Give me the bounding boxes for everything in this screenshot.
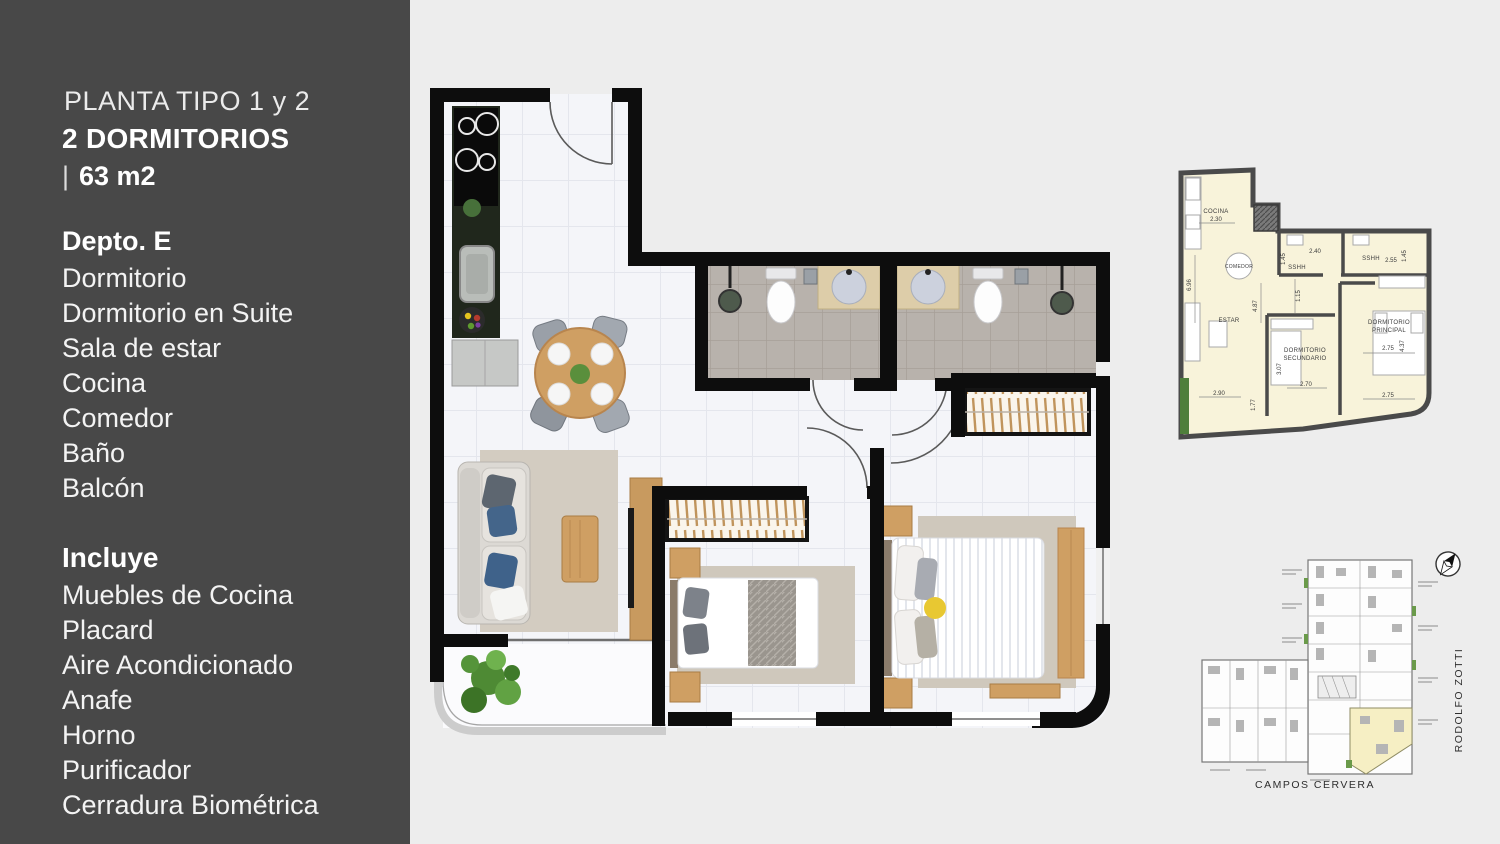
north-arrow-icon xyxy=(1431,548,1466,582)
includes-list-item: Muebles de Cocina xyxy=(62,578,386,613)
bathroom-1 xyxy=(708,264,880,380)
includes-list: Muebles de Cocina Placard Aire Acondicio… xyxy=(62,578,386,823)
mini-dim-275-bottom: 2.75 xyxy=(1382,393,1394,399)
area-value: 63 m2 xyxy=(79,161,156,191)
counter-plant-icon xyxy=(463,199,481,217)
mini-dim-307: 3.07 xyxy=(1277,363,1283,375)
shower-icon xyxy=(1051,292,1073,314)
hedge xyxy=(1180,378,1189,434)
toilet-icon xyxy=(767,281,795,323)
room-list-item: Cocina xyxy=(62,366,386,401)
mini-dim-487: 4.87 xyxy=(1253,300,1259,312)
elevator-core xyxy=(1318,676,1356,698)
includes-list-item: Purificador xyxy=(62,753,386,788)
mini-dim-240: 2.40 xyxy=(1309,249,1321,255)
mini-dim-437: 4.37 xyxy=(1400,340,1406,352)
building-outline xyxy=(1202,560,1438,780)
includes-list-item: Placard xyxy=(62,613,386,648)
room-list-item: Comedor xyxy=(62,401,386,436)
mini-floor-plan-svg: COCINA 2.30 6.96 COMEDOR 4.87 1.15 SSHH … xyxy=(1175,163,1440,440)
room-list-item: Dormitorio xyxy=(62,261,386,296)
shower-icon xyxy=(719,290,741,312)
mini-dim-115: 1.15 xyxy=(1296,290,1302,302)
main-floor-plan-svg xyxy=(430,88,1120,768)
room-list: Dormitorio Dormitorio en Suite Sala de e… xyxy=(62,261,386,506)
basin-icon xyxy=(832,270,866,304)
info-sidebar: PLANTA TIPO 1 y 2 2 DORMITORIOS |63 m2 D… xyxy=(0,0,410,844)
building-site-plan: CAMPOS CERVERA RODOLFO ZOTTI xyxy=(1190,548,1490,793)
dimensioned-floor-plan: COCINA 2.30 6.96 COMEDOR 4.87 1.15 SSHH … xyxy=(1175,163,1440,440)
area-separator: | xyxy=(62,161,69,191)
mini-dim-255: 2.55 xyxy=(1385,258,1397,264)
mini-dim-270: 2.70 xyxy=(1300,382,1312,388)
bedrooms-heading: 2 DORMITORIOS xyxy=(62,123,386,155)
pillow xyxy=(483,552,518,591)
mini-label-comedor: COMEDOR xyxy=(1225,264,1253,270)
unit-title: Depto. E xyxy=(62,226,386,257)
includes-list-item: Anafe xyxy=(62,683,386,718)
dining-table xyxy=(528,314,632,435)
main-floor-plan-render xyxy=(430,88,1120,768)
pillow xyxy=(682,623,709,655)
fruit-bowl-icon xyxy=(459,307,485,333)
mini-dim-290: 2.90 xyxy=(1213,391,1225,397)
includes-title: Incluye xyxy=(62,542,386,574)
mini-label-dorm-ppal-1: DORMITORIO xyxy=(1368,320,1410,326)
bench xyxy=(990,684,1060,698)
room-list-item: Baño xyxy=(62,436,386,471)
small-sink-icon xyxy=(804,269,817,284)
includes-list-item: Aire Acondicionado xyxy=(62,648,386,683)
room-list-item: Dormitorio en Suite xyxy=(62,296,386,331)
plan-type-heading: PLANTA TIPO 1 y 2 xyxy=(64,86,386,117)
street-campos-cervera: CAMPOS CERVERA xyxy=(1255,779,1375,791)
tv-icon xyxy=(628,508,634,608)
shaft xyxy=(1254,205,1278,231)
mini-label-dorm-ppal-2: PRINCIPAL xyxy=(1372,328,1406,334)
mini-dim-275-top: 2.75 xyxy=(1382,346,1394,352)
site-plan-svg: CAMPOS CERVERA RODOLFO ZOTTI xyxy=(1190,548,1490,793)
basin-icon xyxy=(911,270,945,304)
balcony xyxy=(438,640,666,731)
mini-label-dorm-sec-2: SECUNDARIO xyxy=(1283,356,1326,362)
mini-dim-230: 2.30 xyxy=(1210,217,1222,223)
centerpiece-plant-icon xyxy=(570,364,590,384)
nightstand xyxy=(670,672,700,702)
toilet-icon xyxy=(974,281,1002,323)
mini-dim-145-right: 1.45 xyxy=(1402,250,1408,262)
mini-dim-696: 6.96 xyxy=(1187,279,1193,291)
brochure-page: PLANTA TIPO 1 y 2 2 DORMITORIOS |63 m2 D… xyxy=(0,0,1500,844)
blanket xyxy=(748,580,796,666)
accent-pillow-icon xyxy=(924,597,946,619)
mini-dim-177: 1.77 xyxy=(1251,399,1257,411)
mini-label-cocina: COCINA xyxy=(1203,209,1228,215)
mini-label-sshh-right: SSHH xyxy=(1362,256,1380,262)
pillow xyxy=(486,504,518,538)
mini-label-sshh-left: SSHH xyxy=(1288,265,1306,271)
mini-label-estar: ESTAR xyxy=(1218,318,1239,324)
pillow xyxy=(682,586,710,619)
small-sink-icon xyxy=(1015,269,1028,284)
mini-dim-145-left: 1.45 xyxy=(1281,253,1287,265)
street-rodolfo-zotti: RODOLFO ZOTTI xyxy=(1453,648,1465,753)
area-line: |63 m2 xyxy=(62,161,386,192)
nightstand xyxy=(670,548,700,578)
room-list-item: Balcón xyxy=(62,471,386,506)
bathroom-2 xyxy=(897,264,1096,380)
includes-list-item: Horno xyxy=(62,718,386,753)
mini-label-dorm-sec-1: DORMITORIO xyxy=(1284,348,1326,354)
includes-list-item: Cerradura Biométrica xyxy=(62,788,386,823)
nightstand xyxy=(882,506,912,536)
nightstand xyxy=(882,678,912,708)
living-room xyxy=(458,450,662,640)
room-list-item: Sala de estar xyxy=(62,331,386,366)
